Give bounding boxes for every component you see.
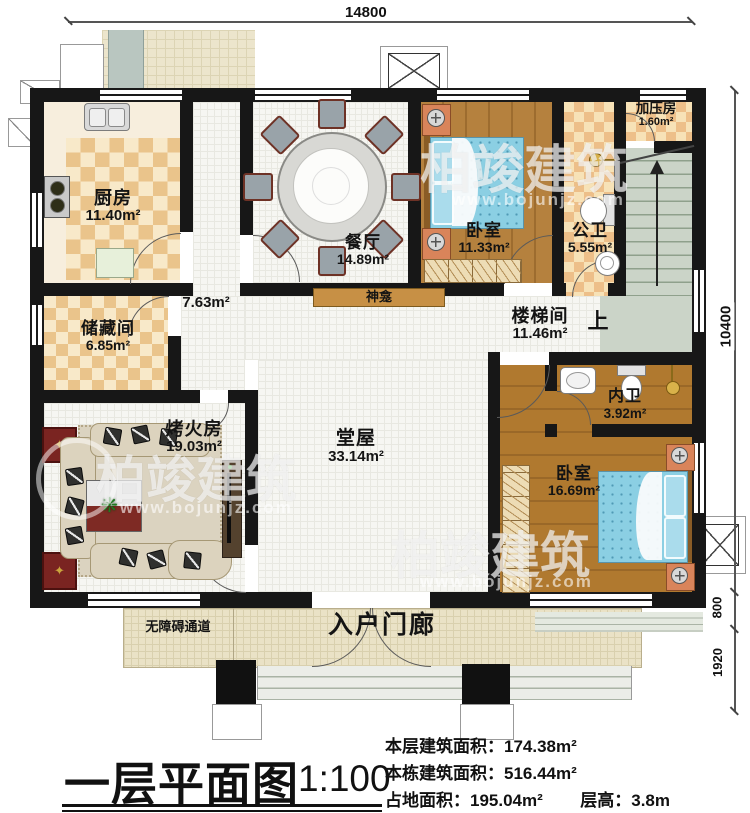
dimension-right-upper-value: 10400	[717, 303, 734, 351]
room-main-hall-floor	[258, 360, 488, 592]
stat-label: 层高：	[580, 791, 631, 810]
window	[530, 592, 652, 608]
pendant-light-icon	[666, 381, 680, 395]
room-area: 14.89m²	[303, 252, 423, 268]
room-area: 1.60m²	[620, 116, 692, 128]
stat-value: 516.44m²	[504, 764, 577, 783]
room-name: 储藏间	[58, 319, 158, 338]
shrine-shelf: 神龛	[313, 288, 445, 307]
title-underline	[62, 804, 382, 807]
dimension-line-top	[68, 21, 692, 23]
room-area: 11.46m²	[488, 326, 592, 343]
room-name: 厨房	[58, 188, 168, 208]
wall	[545, 424, 557, 437]
stat-value: 195.04m²	[470, 791, 543, 810]
room-label-stair-hall: 楼梯间 11.46m²	[488, 306, 592, 343]
wall	[180, 102, 193, 232]
window	[88, 592, 200, 608]
wall	[552, 102, 564, 296]
window	[100, 88, 182, 102]
stat-label: 本栋建筑面积：	[385, 764, 504, 783]
dimension-line-right	[734, 90, 736, 712]
dining-table	[277, 132, 387, 242]
wall	[30, 88, 44, 608]
wall	[30, 390, 200, 403]
bed-sheet	[636, 472, 662, 560]
room-name: 楼梯间	[488, 306, 592, 326]
wall	[240, 102, 253, 235]
scale-label: 1:100	[298, 758, 391, 800]
room-name: 堂屋	[300, 428, 412, 449]
stat-footprint: 占地面积：195.04m² 层高：3.8m	[385, 786, 670, 811]
room-name: 烤火房	[138, 419, 250, 439]
wall	[692, 88, 706, 592]
wall	[245, 390, 258, 545]
nightstand-knob	[671, 447, 688, 464]
pillow	[432, 183, 454, 225]
window	[30, 305, 44, 345]
wall	[592, 424, 706, 437]
room-label-kitchen: 厨房 11.40m²	[58, 188, 168, 225]
wall	[168, 336, 181, 390]
room-label-dining: 餐厅 14.89m²	[303, 233, 423, 268]
stair-landing	[600, 296, 692, 352]
nightstand-knob	[671, 567, 688, 584]
porch-column-right	[462, 664, 510, 704]
stat-label: 本层建筑面积：	[385, 737, 504, 756]
dimension-right-lower-value: 1920	[710, 645, 725, 680]
wall	[549, 352, 706, 365]
room-area: 33.14m²	[300, 449, 412, 466]
room-label-fire-room: 烤火房 19.03m²	[138, 419, 250, 456]
stat-value: 3.8m	[631, 791, 670, 810]
room-label-public-bath: 公卫 5.55m²	[556, 221, 624, 256]
double-sink	[84, 103, 130, 131]
room-area: 3.92m²	[588, 406, 662, 421]
pendant-light-icon	[589, 153, 603, 167]
hallway-area-label: 7.63m²	[170, 295, 242, 312]
chair	[391, 173, 421, 201]
chair	[243, 173, 273, 201]
room-area: 6.85m²	[58, 338, 158, 354]
room-area: 5.55m²	[556, 240, 624, 256]
dimension-top-value: 14800	[342, 4, 390, 21]
ramp-label: 无障碍通道	[124, 620, 232, 635]
entry-steps	[257, 666, 632, 700]
stat-label: 占地面积：	[385, 791, 470, 810]
cushion	[65, 526, 85, 546]
stair-direction-line	[656, 172, 658, 286]
room-name: 公卫	[556, 221, 624, 240]
room-area: 19.03m²	[138, 439, 250, 456]
side-steps	[535, 612, 703, 632]
column-base-left	[212, 704, 262, 740]
cushion	[65, 467, 84, 486]
chair	[318, 99, 346, 129]
pillow	[664, 475, 686, 517]
porch-column-left	[216, 660, 256, 704]
room-label-bedroom-top: 卧室 11.33m²	[438, 221, 530, 256]
tv-cabinet	[222, 460, 242, 558]
window	[692, 270, 706, 332]
room-name: 卧室	[524, 464, 624, 483]
room-label-pressure: 加压房 1.60m²	[620, 101, 692, 128]
window	[437, 88, 529, 102]
wardrobe	[424, 259, 522, 283]
up-arrow-icon	[650, 160, 664, 174]
room-label-ensuite-bath: 内卫 3.92m²	[588, 388, 662, 421]
plant-icon: ❊	[101, 493, 118, 518]
coffee-table: ❊	[86, 480, 142, 532]
dimension-right-mid-value: 800	[709, 594, 724, 622]
stat-building-area: 本栋建筑面积：516.44m²	[385, 759, 577, 784]
window	[640, 88, 686, 102]
up-label: 上	[585, 310, 611, 334]
room-label-main-hall: 堂屋 33.14m²	[300, 428, 412, 466]
room-name: 餐厅	[303, 233, 423, 252]
room-name: 卧室	[438, 221, 530, 240]
cushion	[103, 427, 123, 447]
title-underline-2	[62, 810, 382, 812]
room-label-storage: 储藏间 6.85m²	[58, 319, 158, 354]
room-area: 11.33m²	[438, 240, 530, 256]
pillow	[664, 517, 686, 559]
stat-value: 174.38m²	[504, 737, 577, 756]
room-area: 16.69m²	[524, 483, 624, 499]
porch-label: 入户门廊	[294, 611, 470, 639]
room-name: 加压房	[620, 101, 692, 116]
room-area: 11.40m²	[58, 208, 168, 225]
floor-plan-canvas: 神龛 ✦ ✦ ❊	[0, 0, 750, 813]
corridor-floor	[193, 102, 240, 296]
room-name: 内卫	[588, 388, 662, 406]
window	[30, 193, 44, 247]
room-label-bedroom-bottom: 卧室 16.69m²	[524, 464, 624, 499]
kitchen-cabinet	[96, 248, 134, 278]
stat-floor-area: 本层建筑面积：174.38m²	[385, 732, 577, 757]
porch-divider	[233, 608, 234, 666]
cushion	[118, 547, 138, 567]
shrine-label: 神龛	[366, 289, 392, 304]
flue-top-icon	[388, 53, 440, 89]
nightstand-knob	[427, 109, 445, 127]
pillow	[432, 141, 454, 183]
cushion	[183, 551, 202, 570]
